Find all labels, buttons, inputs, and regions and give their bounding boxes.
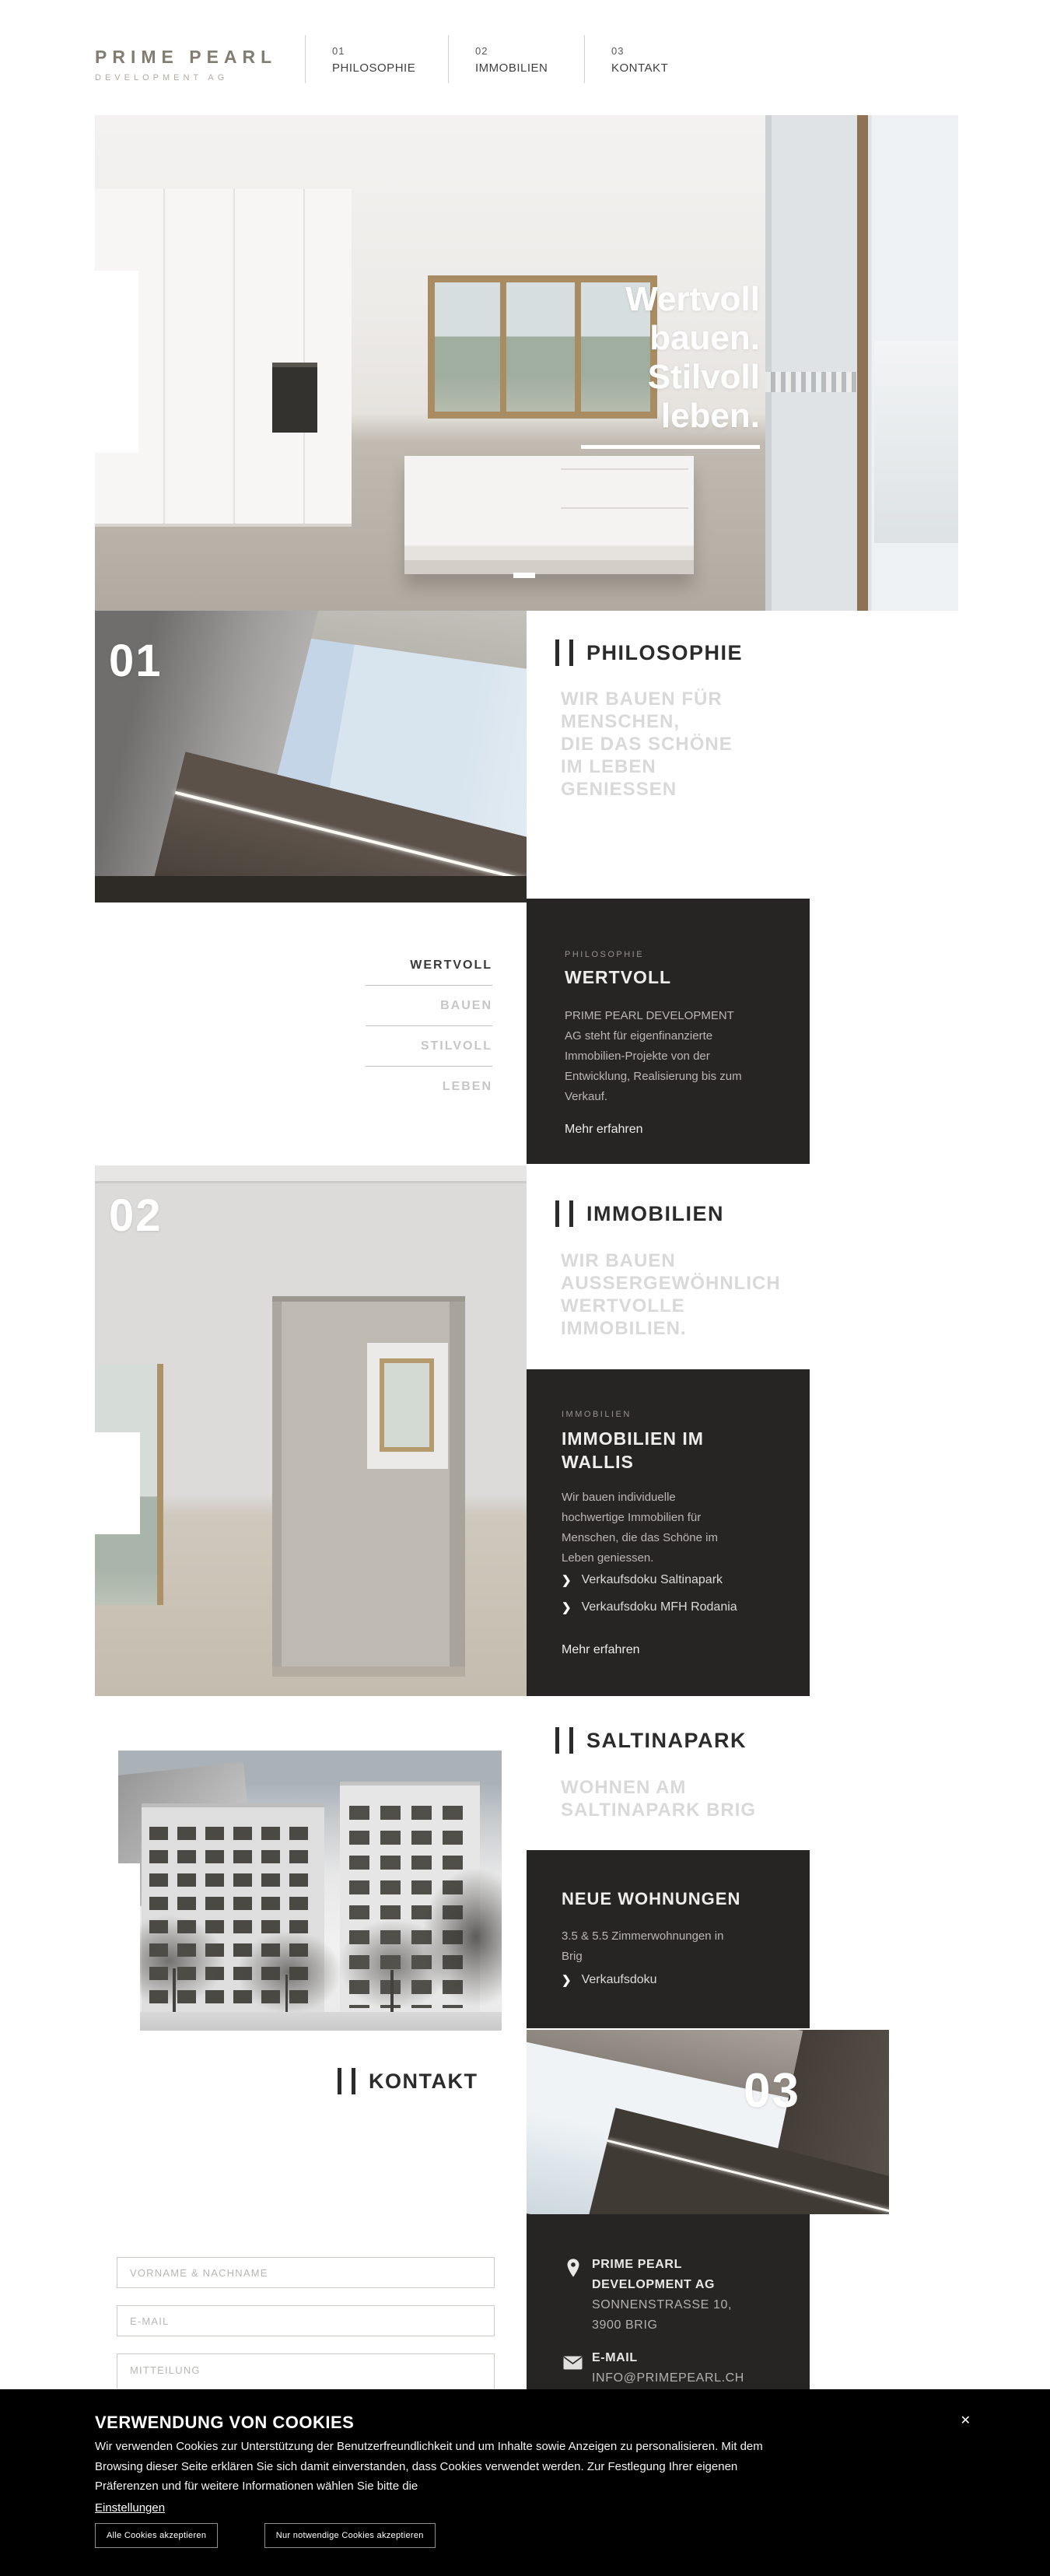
subtitle-line: WIR BAUEN FÜR: [561, 688, 733, 710]
page: PRIME PEARL DEVELOPMENT AG 01 PHILOSOPHI…: [0, 0, 1050, 2576]
subtitle-line: SALTINAPARK BRIG: [561, 1799, 756, 1821]
chevron-right-icon: ❯: [562, 1600, 572, 1614]
tab-divider: [366, 1066, 492, 1067]
card-label: IMMOBILIEN: [562, 1410, 632, 1419]
hero-title-line: bauen.: [625, 319, 760, 358]
nav-item-immobilien[interactable]: 02 IMMOBILIEN: [475, 45, 548, 75]
subtitle-line: WIR BAUEN: [561, 1249, 781, 1272]
nav-number: 03: [611, 45, 668, 57]
subtitle-line: WOHNEN AM: [561, 1776, 756, 1799]
tree-silhouette: [422, 1867, 502, 2007]
hero-title: Wertvoll bauen. Stilvoll leben.: [625, 280, 760, 436]
philosophie-image: 01: [95, 611, 527, 902]
envelope-icon: [563, 2356, 583, 2374]
interior-ceiling-line: [95, 1181, 527, 1183]
nav-divider: [584, 35, 585, 83]
saltinapark-white-notch: [118, 1863, 140, 2031]
island-drawer-line: [561, 468, 688, 470]
window-mullion: [500, 282, 506, 412]
section-title: PHILOSOPHIE: [586, 641, 743, 665]
verkaufsdoku-saltinapark-link[interactable]: ❯ Verkaufsdoku Saltinapark: [562, 1573, 723, 1587]
section-number: 03: [744, 2067, 800, 2115]
glass-frame: [857, 115, 868, 611]
chevron-right-icon: ❯: [562, 1973, 572, 1987]
card-title: NEUE WOHNUNGEN: [562, 1887, 740, 1911]
nav-number: 01: [332, 45, 415, 57]
philosophie-subtitle: WIR BAUEN FÜR MENSCHEN, DIE DAS SCHÖNE I…: [561, 688, 733, 801]
box-floor-shadow: [272, 1667, 465, 1677]
subtitle-line: DIE DAS SCHÖNE: [561, 733, 733, 755]
heading-bars-icon: [338, 2068, 355, 2094]
company-name-line: PRIME PEARL: [592, 2255, 732, 2275]
mehr-erfahren-link[interactable]: Mehr erfahren: [562, 1643, 640, 1657]
tab-wertvoll[interactable]: WERTVOLL: [95, 959, 492, 973]
email-input[interactable]: [117, 2305, 495, 2336]
nav-label: PHILOSOPHIE: [332, 61, 415, 75]
built-in-oven: [272, 363, 317, 433]
kitchen-window: [428, 275, 657, 419]
card-title: IMMOBILIEN IM WALLIS: [562, 1427, 726, 1474]
tree-trunk: [173, 1968, 176, 2017]
subtitle-line: IM LEBEN: [561, 755, 733, 778]
heading-bars-icon: [555, 640, 573, 666]
hero-title-line: leben.: [625, 397, 760, 436]
doc-link-label: Verkaufsdoku MFH Rodania: [582, 1600, 737, 1614]
saltinapark-subtitle: WOHNEN AM SALTINAPARK BRIG: [561, 1776, 756, 1821]
tree-silhouette: [235, 1929, 344, 2015]
subtitle-line: MENSCHEN,: [561, 710, 733, 733]
cookie-banner-text-block: Wir verwenden Cookies zur Unterstützung …: [95, 2427, 799, 2515]
email-label: E-MAIL: [592, 2348, 744, 2368]
hero-title-line: Stilvoll: [625, 358, 760, 397]
tab-divider: [366, 1025, 492, 1026]
tab-divider: [366, 985, 492, 986]
nav-item-philosophie[interactable]: 01 PHILOSOPHIE: [332, 45, 415, 75]
name-input[interactable]: [117, 2257, 495, 2288]
saltinapark-heading: SALTINAPARK: [555, 1727, 747, 1754]
address-line: SONNENSTRASSE 10,: [592, 2295, 732, 2315]
terrace-railing: [765, 372, 857, 392]
immobilien-white-notch: [95, 1432, 140, 1534]
subtitle-line: WERTVOLLE: [561, 1295, 781, 1317]
brand-logo[interactable]: PRIME PEARL DEVELOPMENT AG: [95, 47, 277, 82]
bottom-dark-band: [95, 876, 527, 902]
immobilien-card: IMMOBILIEN IMMOBILIEN IM WALLIS Wir baue…: [527, 1369, 810, 1696]
tree-trunk: [390, 1970, 394, 2017]
hero-white-notch: [95, 271, 138, 453]
carousel-indicator[interactable]: [513, 573, 535, 578]
immobilien-subtitle: WIR BAUEN AUSSERGEWÖHNLICH WERTVOLLE IMM…: [561, 1249, 781, 1340]
verkaufsdoku-rodania-link[interactable]: ❯ Verkaufsdoku MFH Rodania: [562, 1600, 737, 1614]
island-drawer-line: [561, 507, 688, 509]
doc-link-label: Verkaufsdoku Saltinapark: [582, 1573, 723, 1587]
philosophie-card: PHILOSOPHIE WERTVOLL PRIME PEARL DEVELOP…: [527, 899, 810, 1164]
section-number: 02: [109, 1193, 163, 1239]
cookie-settings-link[interactable]: Einstellungen: [95, 2501, 165, 2515]
hero-title-line: Wertvoll: [625, 280, 760, 319]
mehr-erfahren-link[interactable]: Mehr erfahren: [565, 1123, 643, 1137]
kontakt-image: 03: [527, 2030, 889, 2214]
doc-link-label: Verkaufsdoku: [582, 1973, 657, 1987]
tab-bauen[interactable]: BAUEN: [95, 999, 492, 1013]
chevron-right-icon: ❯: [562, 1573, 572, 1587]
card-body: PRIME PEARL DEVELOPMENT AG steht für eig…: [565, 1006, 745, 1107]
kitchen-island: [404, 456, 694, 574]
card-label: PHILOSOPHIE: [565, 950, 644, 959]
section-title: IMMOBILIEN: [586, 1202, 724, 1226]
inner-wood-window: [380, 1358, 434, 1452]
location-pin-icon: [565, 2258, 581, 2282]
section-number: 01: [109, 639, 163, 684]
contact-address-block: PRIME PEARL DEVELOPMENT AG SONNENSTRASSE…: [592, 2255, 732, 2336]
philosophie-heading: PHILOSOPHIE: [555, 640, 743, 666]
immobilien-heading: IMMOBILIEN: [555, 1200, 724, 1227]
accept-all-cookies-button[interactable]: Alle Cookies akzeptieren: [95, 2523, 218, 2548]
verkaufsdoku-link[interactable]: ❯ Verkaufsdoku: [562, 1973, 657, 1987]
heading-bars-icon: [555, 1200, 573, 1227]
hero-title-underline: [581, 445, 760, 449]
card-title: WERTVOLL: [565, 966, 671, 989]
window-mullion: [575, 282, 581, 412]
nav-item-kontakt[interactable]: 03 KONTAKT: [611, 45, 668, 75]
saltinapark-card: NEUE WOHNUNGEN 3.5 & 5.5 Zimmerwohnungen…: [527, 1850, 810, 2028]
cookie-banner: VERWENDUNG VON COOKIES ✕ Wir verwenden C…: [0, 2389, 1050, 2576]
card-body: 3.5 & 5.5 Zimmerwohnungen in Brig: [562, 1926, 747, 1967]
hero-image: Wertvoll bauen. Stilvoll leben.: [95, 115, 958, 611]
glass-wall: [765, 115, 958, 611]
glass-reflection: [874, 341, 958, 543]
saltinapark-image: [118, 1751, 502, 2031]
nav-divider: [305, 35, 306, 83]
box-window-opening: [367, 1343, 448, 1469]
nav-divider: [448, 35, 449, 83]
ground-strip: [118, 2012, 502, 2031]
tab-stilvoll[interactable]: STILVOLL: [95, 1039, 492, 1053]
heading-bars-icon: [555, 1727, 573, 1754]
subtitle-line: IMMOBILIEN.: [561, 1317, 781, 1340]
nav-label: KONTAKT: [611, 61, 668, 75]
email-value[interactable]: INFO@PRIMEPEARL.CH: [592, 2368, 744, 2388]
kontakt-heading: KONTAKT: [338, 2068, 478, 2094]
subtitle-line: AUSSERGEWÖHNLICH: [561, 1272, 781, 1295]
tab-leben[interactable]: LEBEN: [95, 1080, 492, 1094]
close-icon[interactable]: ✕: [961, 2413, 971, 2428]
company-name-line: DEVELOPMENT AG: [592, 2275, 732, 2295]
nav-label: IMMOBILIEN: [475, 61, 548, 75]
nav-number: 02: [475, 45, 548, 57]
address-line: 3900 BRIG: [592, 2315, 732, 2336]
section-title: SALTINAPARK: [586, 1729, 747, 1753]
section-title: KONTAKT: [369, 2070, 478, 2094]
brand-subtitle: DEVELOPMENT AG: [95, 73, 277, 82]
contact-email-block: E-MAIL INFO@PRIMEPEARL.CH: [592, 2348, 744, 2388]
cookie-banner-body: Wir verwenden Cookies zur Unterstützung …: [95, 2437, 799, 2497]
cookie-buttons-row: Alle Cookies akzeptieren Nur notwendige …: [95, 2523, 436, 2548]
brand-title: PRIME PEARL: [95, 47, 277, 68]
immobilien-image: 02: [95, 1165, 527, 1696]
subtitle-line: GENIESSEN: [561, 778, 733, 801]
accept-necessary-cookies-button[interactable]: Nur notwendige Cookies akzeptieren: [264, 2523, 436, 2548]
card-body: Wir bauen individuelle hochwertige Immob…: [562, 1488, 739, 1568]
